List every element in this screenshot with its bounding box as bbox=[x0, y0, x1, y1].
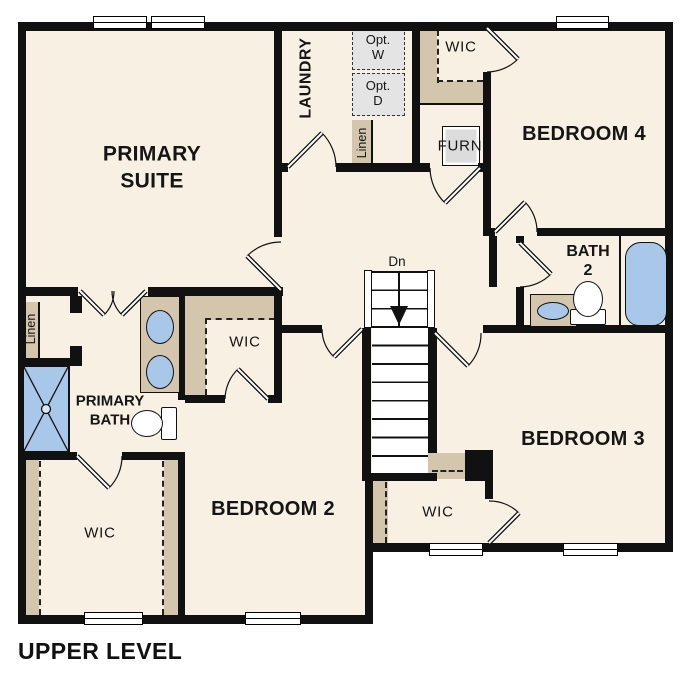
wic4-shelf-left bbox=[420, 30, 437, 83]
label-bedroom3: BEDROOM 3 bbox=[521, 426, 645, 452]
label-linen-top: Linen bbox=[354, 128, 370, 159]
wall-vestibule bbox=[489, 236, 497, 287]
window-wic-center bbox=[429, 543, 483, 556]
bathtub bbox=[625, 242, 667, 326]
wall-wicmid-bottom-stub bbox=[268, 395, 282, 403]
wall-bed4-bottom-b bbox=[537, 228, 673, 236]
wic-center-dash-h bbox=[432, 470, 463, 472]
plan-title: UPPER LEVEL bbox=[18, 638, 182, 665]
window-bedroom2 bbox=[245, 612, 301, 625]
wall-outer-bottom-left bbox=[18, 615, 373, 624]
wic-center-dash-v bbox=[385, 482, 387, 543]
wall-bath2-bottom bbox=[483, 325, 673, 333]
window-wic-left bbox=[84, 612, 143, 625]
wall-stair-bottom bbox=[362, 473, 437, 481]
wall-stair-right bbox=[428, 328, 437, 453]
wall-bed4-left-stub bbox=[483, 22, 491, 28]
tub-divider bbox=[619, 236, 621, 325]
wall-laundry-bottom bbox=[336, 163, 430, 172]
label-opt-washer: Opt. W bbox=[366, 33, 391, 63]
stair-treads bbox=[372, 271, 428, 474]
linen-top-edge bbox=[371, 120, 373, 165]
floor-plan: PRIMARY SUITE LAUNDRY Opt. W Opt. D WIC … bbox=[0, 0, 687, 687]
wall-bed4-bottom-a bbox=[483, 228, 495, 236]
label-primary-suite: PRIMARY SUITE bbox=[103, 141, 201, 196]
stair-rail-right bbox=[427, 270, 435, 328]
window-bedroom3 bbox=[563, 543, 618, 556]
wic-left-dash-a bbox=[39, 461, 41, 615]
label-wic-bedroom4: WIC bbox=[445, 37, 477, 57]
wic-mid-dash-h bbox=[205, 318, 275, 320]
label-laundry: LAUNDRY bbox=[297, 37, 318, 118]
wall-wicmid-right bbox=[274, 290, 282, 403]
wall-suite-bottom-b bbox=[148, 287, 283, 296]
wall-linen-stub-bottom bbox=[70, 346, 82, 358]
wall-wiccenter-stub bbox=[485, 481, 493, 499]
wall-bath-bottom-a bbox=[26, 452, 77, 460]
floor-area-main bbox=[18, 22, 673, 552]
wall-wicmid-bottom-a bbox=[185, 395, 225, 403]
wall-laundry-right bbox=[412, 22, 420, 163]
wic-mid-shelf-left bbox=[185, 296, 206, 400]
label-bedroom4: BEDROOM 4 bbox=[522, 121, 646, 147]
label-wic-mid: WIC bbox=[229, 332, 261, 352]
label-linen-left: Linen bbox=[23, 314, 39, 345]
wall-bath2-left-stub bbox=[516, 236, 524, 243]
window-primary-suite-a bbox=[93, 16, 147, 29]
label-opt-dryer: Opt. D bbox=[366, 79, 391, 109]
wic-mid-dash-v bbox=[205, 318, 207, 395]
wic4-shelf-bottom bbox=[420, 81, 483, 105]
wall-suite-bottom-a bbox=[26, 287, 78, 296]
stair-arrow-stem bbox=[398, 277, 400, 308]
wall-outer-bottom-right bbox=[372, 543, 673, 552]
wic4-dash-h bbox=[437, 80, 483, 82]
wic-left-shelf-a bbox=[25, 460, 39, 616]
wall-wiccenter-block bbox=[465, 450, 493, 481]
wall-bath-bottom-b bbox=[122, 452, 185, 460]
label-stairs-dn: Dn bbox=[388, 253, 405, 271]
primary-toilet-tank bbox=[161, 407, 177, 440]
wic4-bottom-edge bbox=[420, 103, 483, 105]
wic-left-shelf-b bbox=[164, 460, 178, 616]
wall-linen-stub-top bbox=[70, 296, 82, 313]
label-furnace: FURN bbox=[438, 136, 483, 156]
stair-arrow-head bbox=[390, 306, 408, 325]
label-bedroom2: BEDROOM 2 bbox=[211, 496, 335, 522]
stair-rail-left bbox=[364, 270, 372, 328]
window-bedroom4 bbox=[556, 16, 609, 29]
window-primary-suite-b bbox=[151, 16, 205, 29]
wall-bed4-left bbox=[483, 72, 491, 236]
wall-stair-left bbox=[362, 328, 371, 481]
primary-sink-b bbox=[146, 355, 174, 389]
shower bbox=[22, 365, 70, 453]
bath2-toilet-bowl bbox=[573, 281, 603, 317]
label-bath2: BATH 2 bbox=[566, 242, 609, 280]
wall-laundry-bottom-stub bbox=[281, 163, 288, 172]
primary-sink-a bbox=[146, 310, 174, 344]
label-wic-left: WIC bbox=[84, 523, 116, 543]
bath2-sink bbox=[537, 302, 569, 320]
wall-suite-right bbox=[274, 22, 282, 237]
wall-hall-mid bbox=[282, 325, 322, 333]
wic-left-dash-b bbox=[162, 461, 164, 615]
label-wic-center: WIC bbox=[422, 502, 454, 522]
wall-wicleft-right bbox=[178, 452, 185, 615]
wic4-dash-v bbox=[437, 30, 439, 83]
label-primary-bath: PRIMARY BATH bbox=[76, 392, 145, 430]
wall-step-vertical bbox=[365, 481, 373, 624]
floor-area-bottom-left bbox=[18, 552, 373, 624]
